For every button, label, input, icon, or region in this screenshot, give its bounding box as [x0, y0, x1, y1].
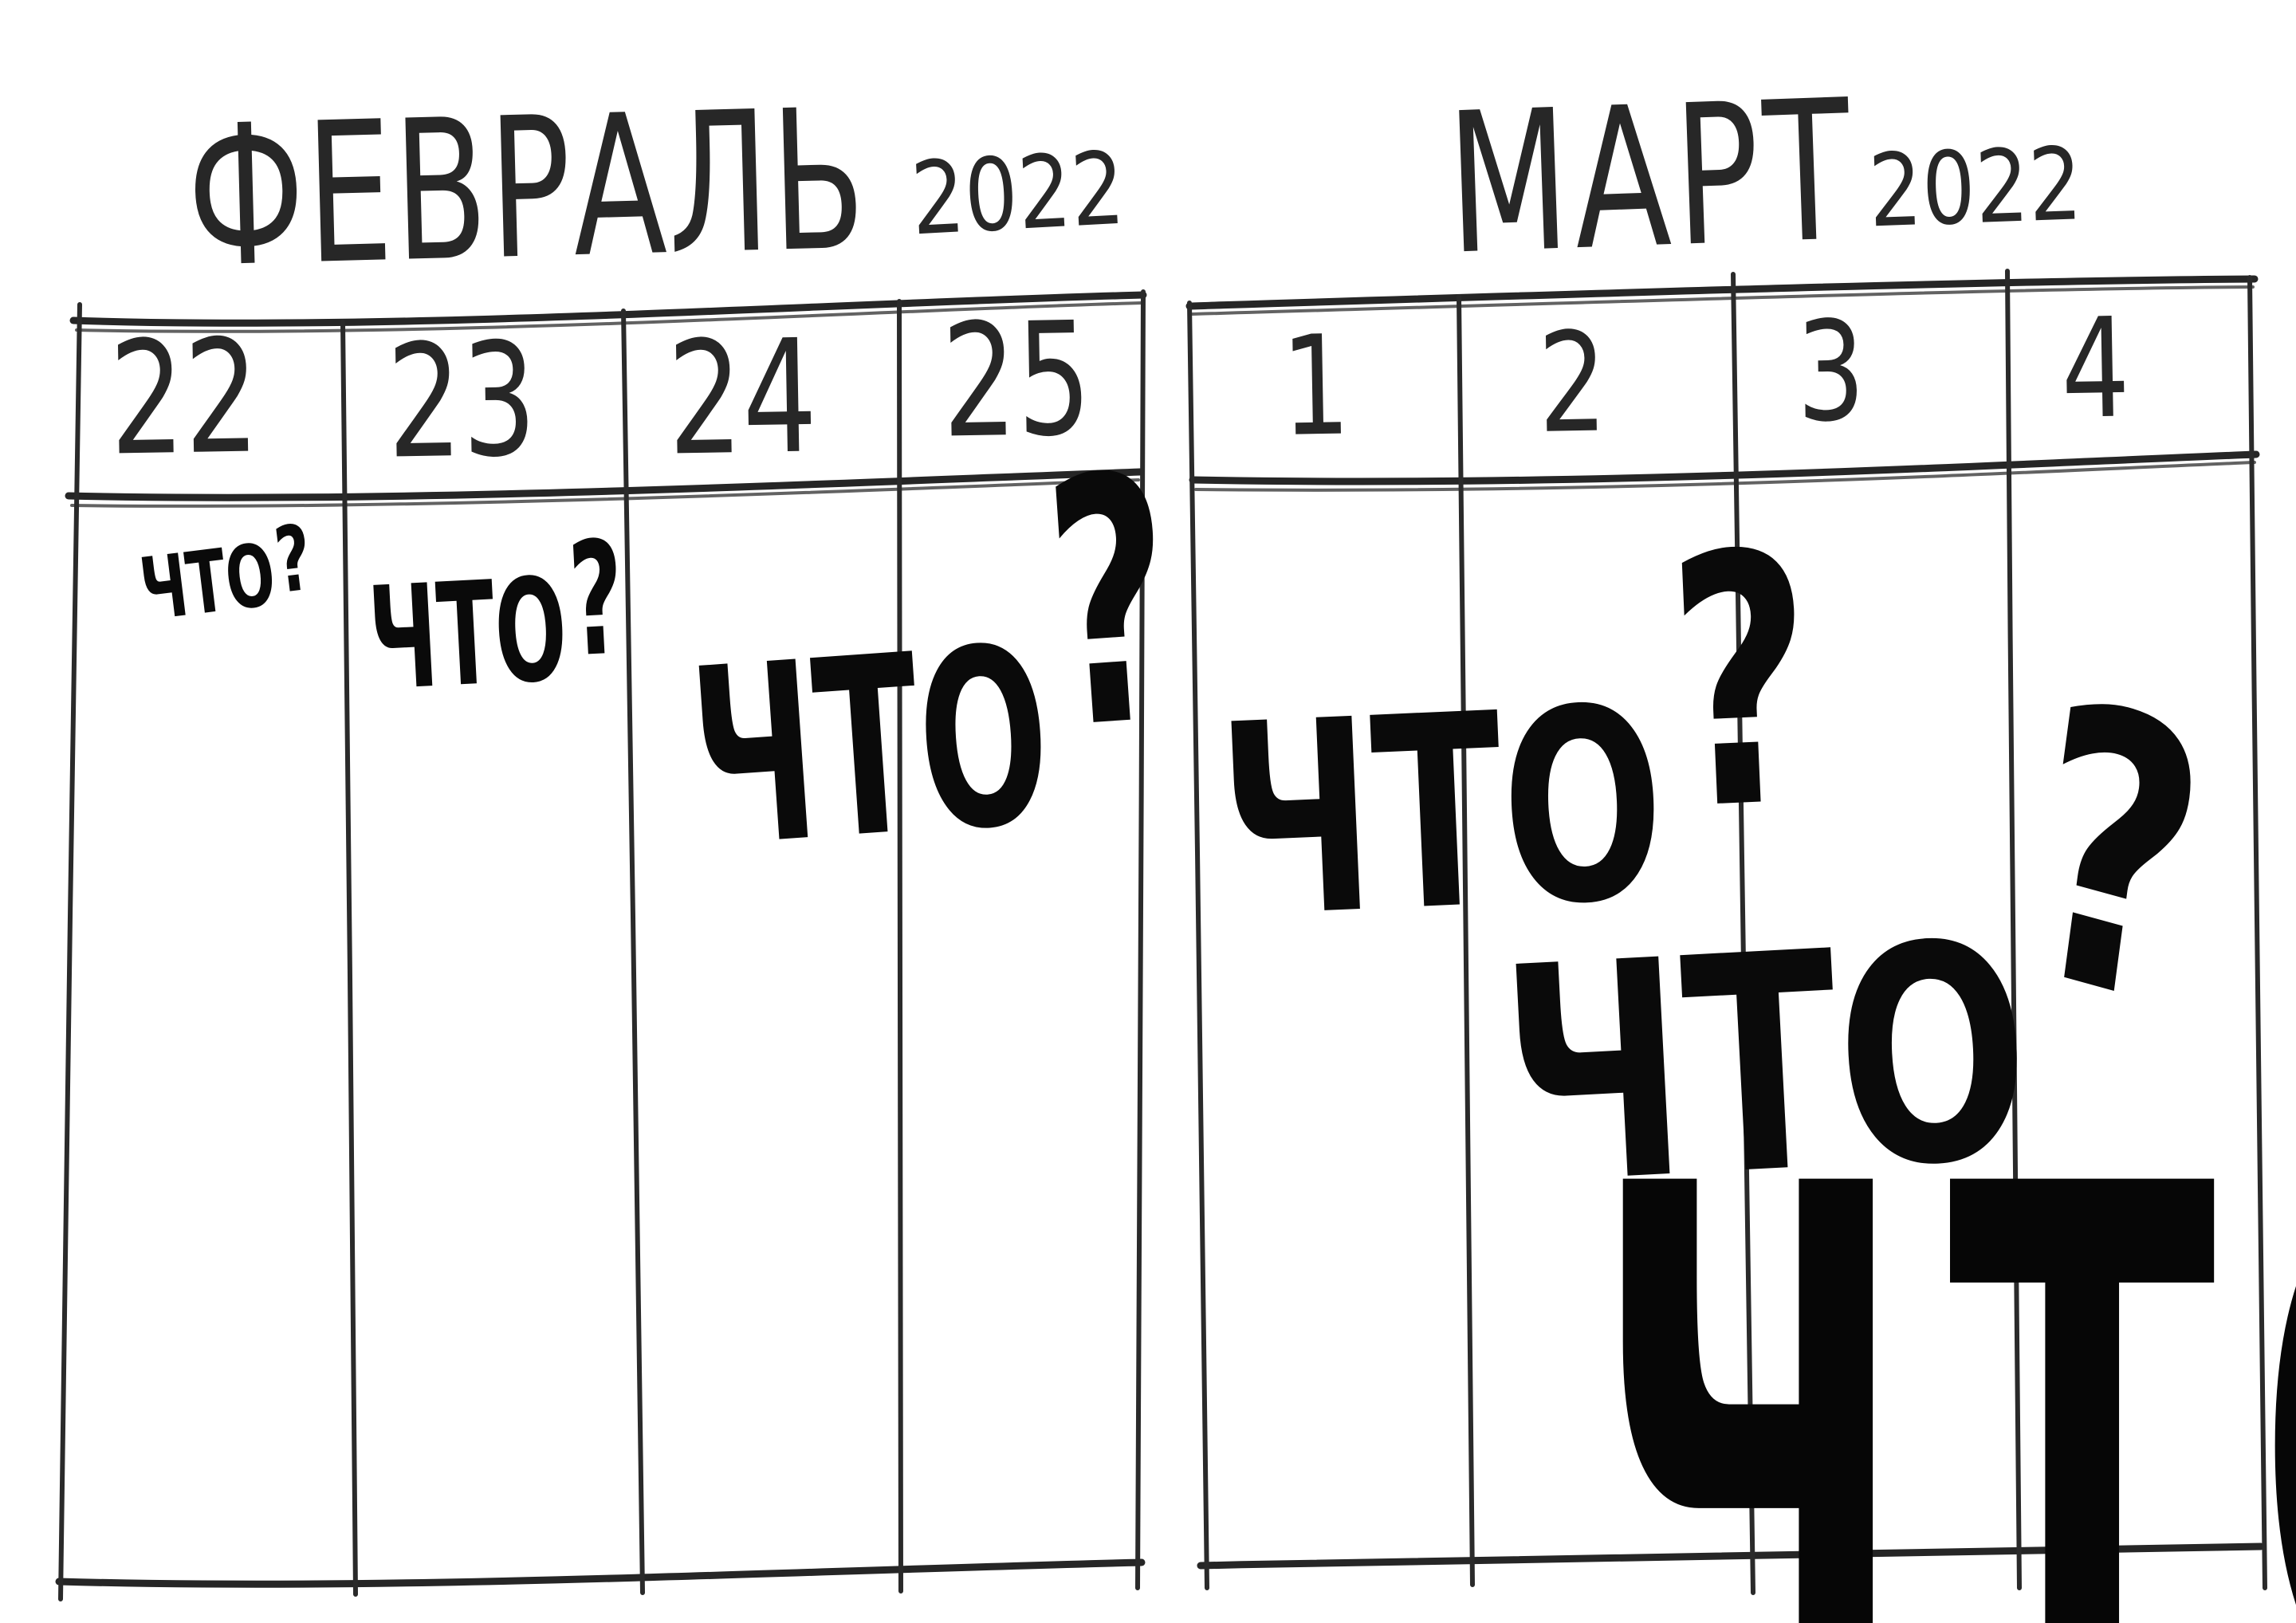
- feb-entry-day24-25-word: ЧТО: [683, 595, 1058, 903]
- mar-year-label: 2022: [1867, 135, 2083, 242]
- feb-entry-day23-question-mark: ?: [566, 521, 628, 680]
- feb-entry-day23-word: ЧТО: [365, 548, 571, 723]
- feb-entry-day24-25: ЧТО?: [679, 525, 1189, 897]
- feb-year-label: 2022: [909, 139, 1126, 250]
- feb-col-line-4: [899, 301, 901, 1591]
- mar-entry-day1-question-mark: ?: [1663, 508, 1821, 859]
- feb-entry-day22-word: ЧТО: [135, 525, 281, 641]
- feb-day-header-22: 22: [108, 320, 260, 478]
- feb-entry-day24-25-question-mark: ?: [1038, 431, 1183, 777]
- feb-col-line-3: [623, 311, 643, 1593]
- mar-day-header-3: 3: [1795, 304, 1866, 442]
- feb-month-title: ФЕВРАЛЬ: [185, 84, 869, 296]
- mar-col-line-1: [1189, 303, 1207, 1588]
- hand-drawn-calendar-illustration: ФЕВРАЛЬ 2022 МАРТ 2022 22 23 24 25 1 2 3…: [0, 0, 2296, 1623]
- mar-entry-day3-4-clipped: ЧТО: [1591, 1094, 2296, 1623]
- feb-col-line-2: [343, 322, 356, 1594]
- mar-day-header-1: 1: [1280, 318, 1351, 457]
- feb-day-header-24: 24: [666, 320, 818, 478]
- mar-entry-day3-4-word: ЧТО: [1591, 1033, 2296, 1623]
- mar-day-header-4: 4: [2060, 301, 2131, 439]
- feb-day-header-23: 23: [386, 323, 537, 481]
- mar-day-header-2: 2: [1537, 315, 1608, 454]
- mar-month-title: МАРТ: [1445, 75, 1858, 283]
- feb-entry-day23: ЧТО?: [365, 544, 629, 714]
- feb-bottom-border: [59, 1562, 1142, 1584]
